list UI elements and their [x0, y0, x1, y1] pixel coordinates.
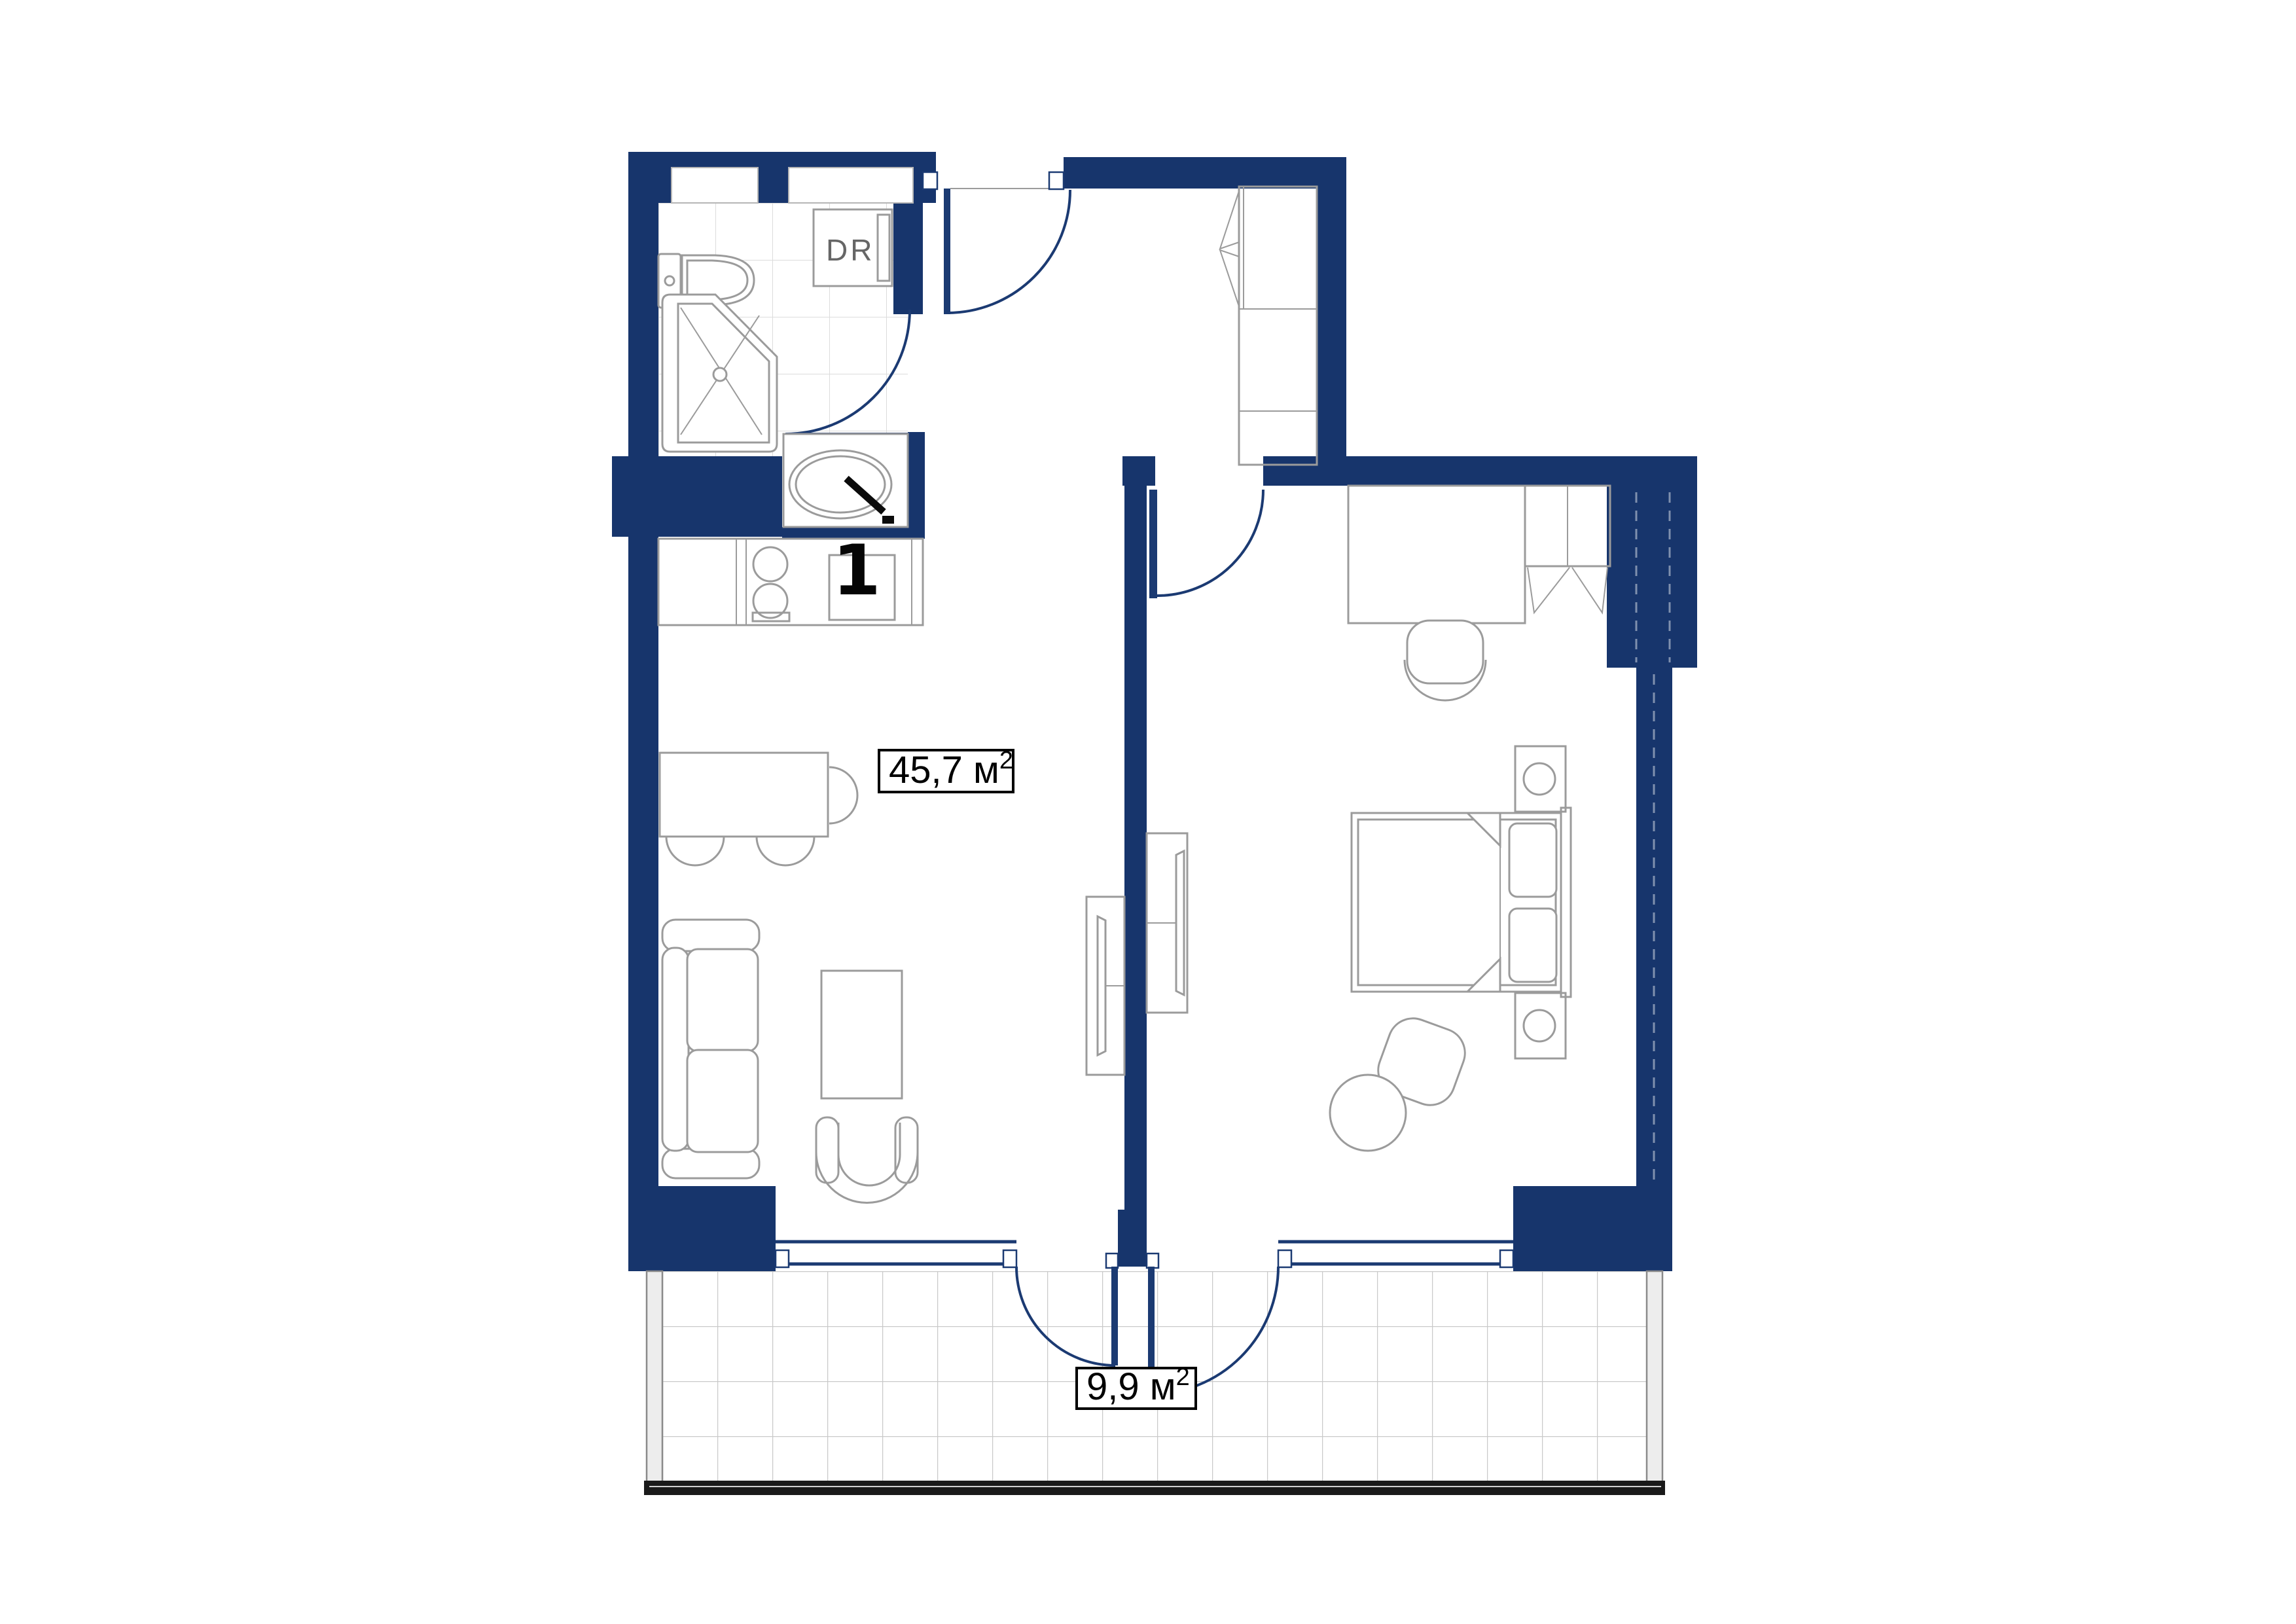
- dining-chair: [757, 837, 814, 865]
- balcony-glass-right: [1647, 1271, 1662, 1493]
- nightstand: [1515, 993, 1566, 1058]
- lamp-icon: [1524, 763, 1555, 795]
- tv-bedroom: [1147, 833, 1187, 1013]
- dryer-closet: DR: [814, 209, 892, 286]
- floor-plan-page: DR 1: [0, 0, 2296, 1624]
- pouf-chairs: [1330, 1011, 1472, 1151]
- balcony-railing: [644, 1481, 1665, 1495]
- entry-door: [923, 172, 1070, 314]
- dining-table: [660, 753, 828, 837]
- headboard: [1561, 808, 1571, 997]
- coffee-table: [821, 971, 902, 1098]
- pillow: [1509, 909, 1556, 982]
- wall-niche: [789, 168, 913, 203]
- faucet-base: [882, 516, 894, 524]
- dryer-label: DR: [826, 233, 874, 267]
- desk-chair: [1405, 621, 1486, 700]
- dining-chair: [666, 837, 724, 865]
- nightstand: [1515, 746, 1566, 812]
- window-living: [776, 1242, 1016, 1267]
- svg-text:9,9 м2: 9,9 м2: [1086, 1363, 1190, 1408]
- svg-text:45,7 м2: 45,7 м2: [889, 747, 1013, 791]
- dining-chair: [829, 767, 857, 823]
- desk: [1348, 486, 1525, 623]
- hallway-closet: [1220, 187, 1317, 465]
- wardrobe: [1525, 486, 1610, 613]
- area-label-balcony: 9,9 м2: [1077, 1363, 1196, 1409]
- balcony-glass-left: [647, 1271, 662, 1493]
- area-label-main: 45,7 м2: [879, 747, 1013, 792]
- bedroom-door: [1149, 490, 1263, 598]
- kitchen-counter: [658, 539, 923, 625]
- pillow: [1509, 823, 1556, 897]
- hob-icon: [753, 547, 789, 621]
- lamp-icon: [1524, 1010, 1555, 1041]
- bed: [1352, 808, 1571, 997]
- wall-niche: [672, 168, 758, 203]
- armchair: [816, 1117, 918, 1203]
- apartment-number: 1: [833, 530, 881, 611]
- window-bedroom: [1278, 1242, 1513, 1267]
- floor-plan: DR 1: [0, 0, 2296, 1624]
- sofa: [662, 920, 759, 1178]
- tv-living: [1086, 897, 1124, 1075]
- vanity-sink: [783, 434, 908, 527]
